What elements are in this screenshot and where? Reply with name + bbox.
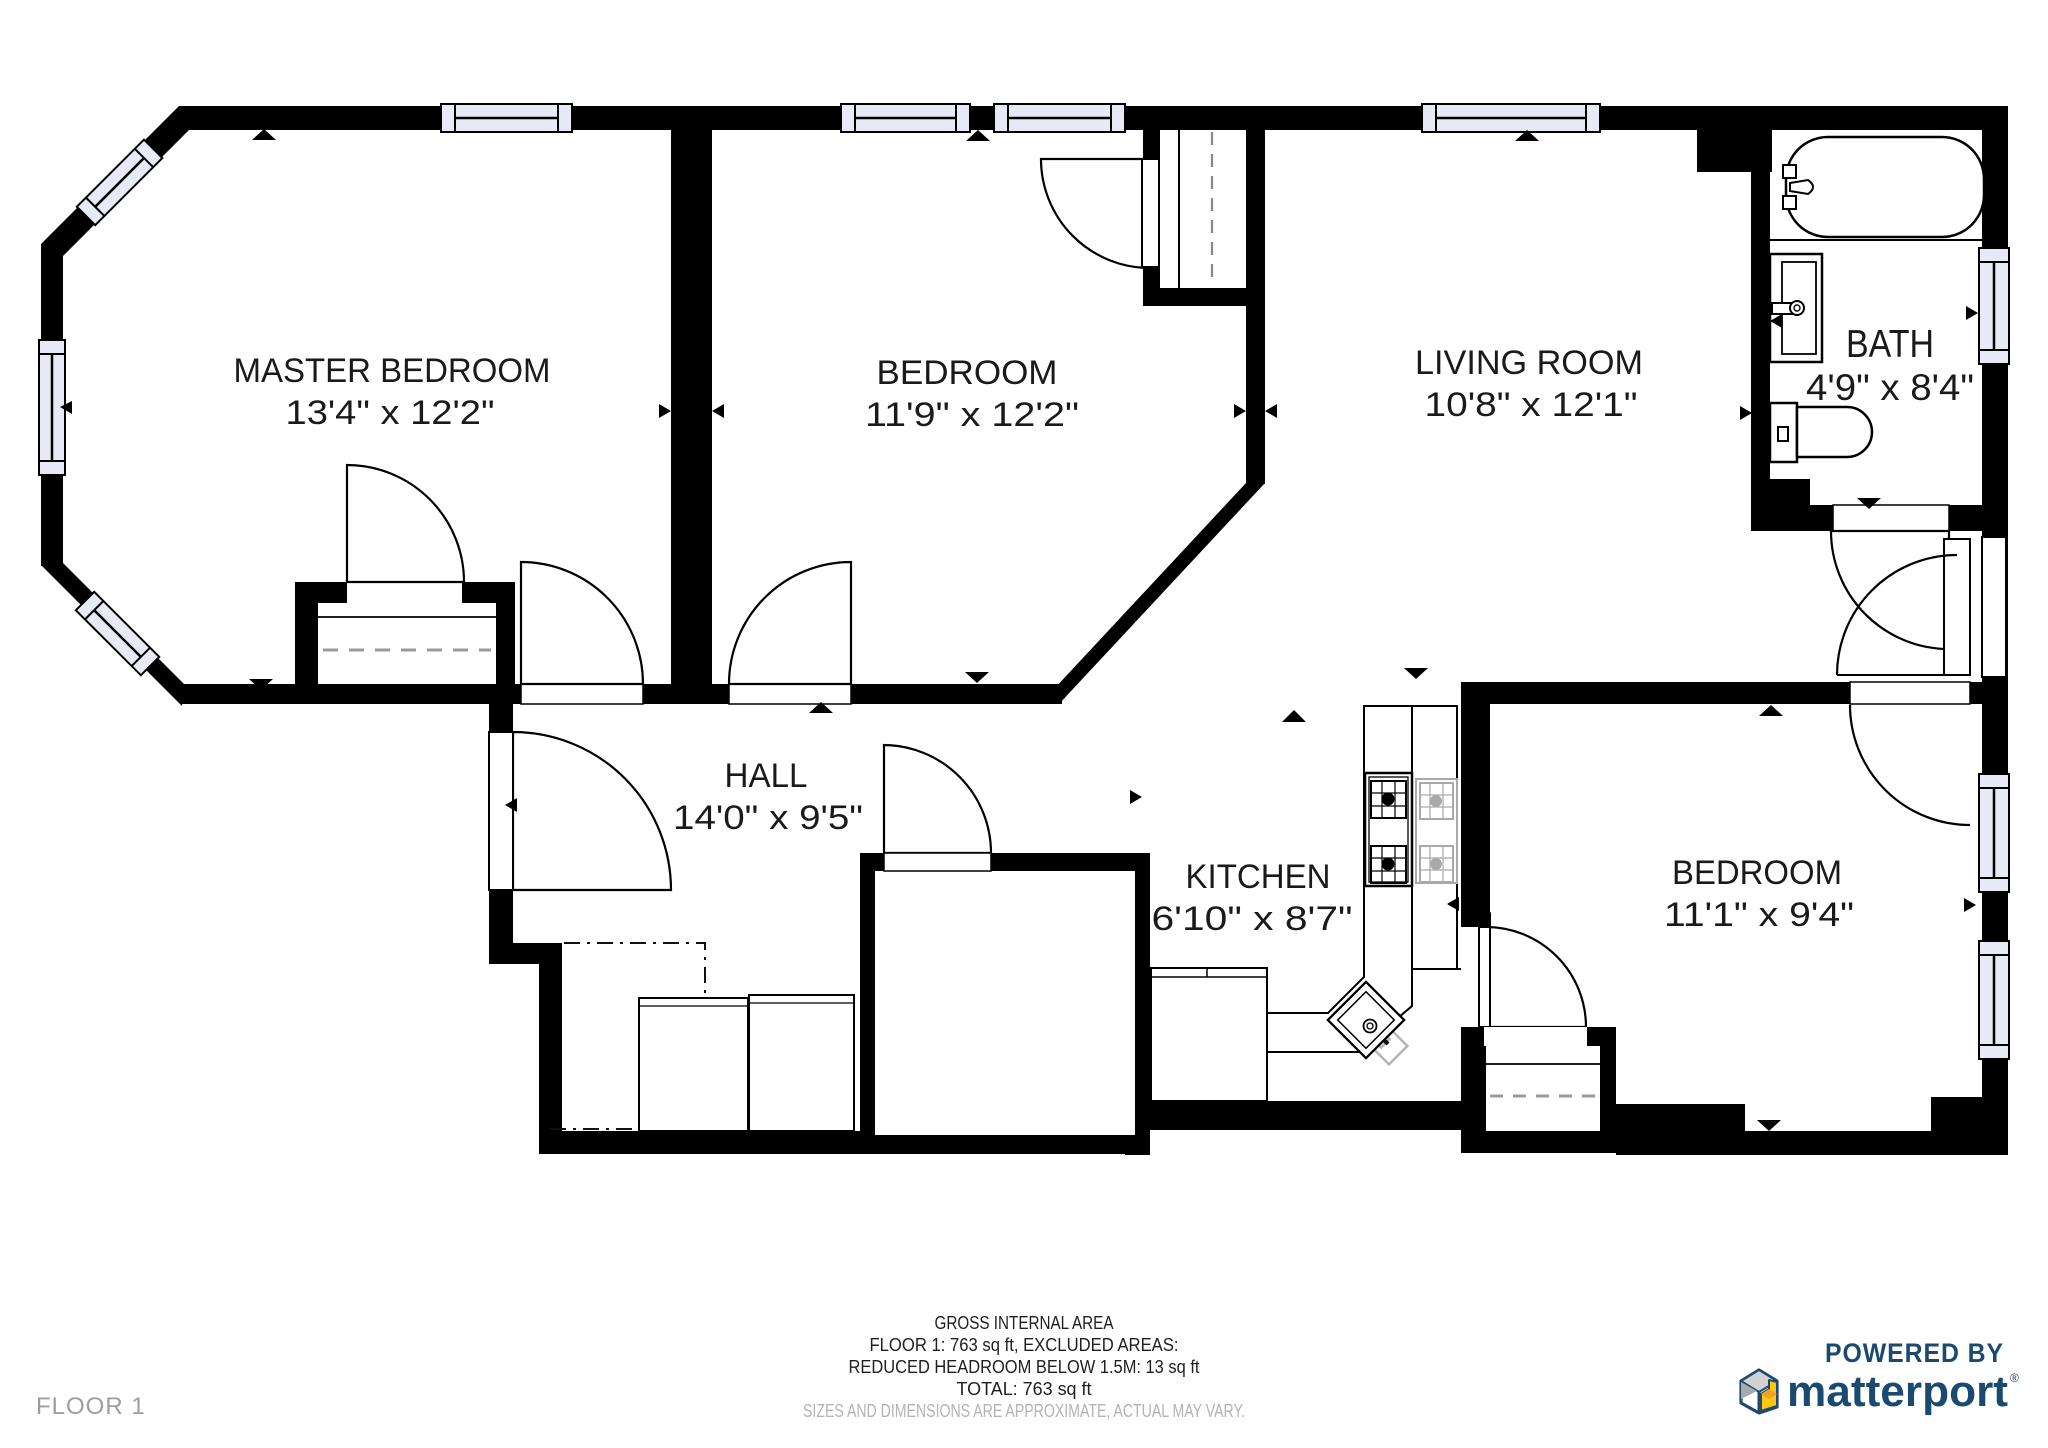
svg-text:FLOOR 1: 763 sq ft, EXCLUDED A: FLOOR 1: 763 sq ft, EXCLUDED AREAS: <box>870 1334 1179 1355</box>
svg-text:KITCHEN: KITCHEN <box>1186 858 1331 896</box>
svg-text:TOTAL: 763 sq ft: TOTAL: 763 sq ft <box>957 1378 1092 1399</box>
svg-text:POWERED BY: POWERED BY <box>1825 1338 2004 1368</box>
svg-text:GROSS INTERNAL AREA: GROSS INTERNAL AREA <box>935 1312 1115 1333</box>
svg-text:HALL: HALL <box>725 757 808 795</box>
svg-text:11'9" x 12'2": 11'9" x 12'2" <box>865 396 1079 434</box>
svg-text:BATH: BATH <box>1846 323 1934 366</box>
svg-text:10'8" x 12'1": 10'8" x 12'1" <box>1425 386 1638 424</box>
svg-text:SIZES AND DIMENSIONS ARE APPRO: SIZES AND DIMENSIONS ARE APPROXIMATE, AC… <box>803 1400 1245 1421</box>
svg-text:REDUCED HEADROOM BELOW 1.5M: 1: REDUCED HEADROOM BELOW 1.5M: 13 sq ft <box>849 1356 1200 1377</box>
svg-text:MASTER BEDROOM: MASTER BEDROOM <box>234 352 551 390</box>
svg-text:6'10" x 8'7": 6'10" x 8'7" <box>1152 900 1353 938</box>
svg-text:13'4" x 12'2": 13'4" x 12'2" <box>286 394 495 432</box>
svg-text:4'9" x 8'4": 4'9" x 8'4" <box>1806 367 1974 408</box>
svg-text:11'1" x 9'4": 11'1" x 9'4" <box>1664 896 1854 934</box>
svg-text:14'0" x 9'5": 14'0" x 9'5" <box>673 799 863 837</box>
svg-text:LIVING ROOM: LIVING ROOM <box>1415 344 1643 382</box>
svg-text:FLOOR 1: FLOOR 1 <box>36 1393 146 1420</box>
svg-text:BEDROOM: BEDROOM <box>877 354 1058 392</box>
svg-text:BEDROOM: BEDROOM <box>1672 854 1842 892</box>
svg-text:matterport: matterport <box>1787 1367 2008 1416</box>
svg-text:®: ® <box>2010 1371 2019 1385</box>
